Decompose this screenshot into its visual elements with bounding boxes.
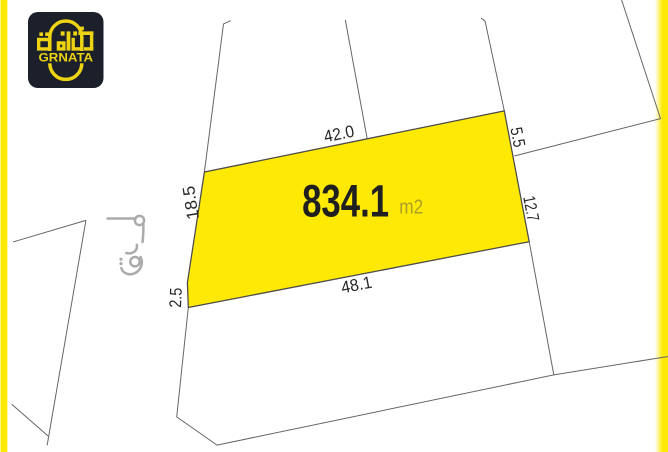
svg-text:5.5: 5.5 — [506, 126, 528, 149]
svg-text:m2: m2 — [399, 196, 423, 218]
svg-text:GRNATA: GRNATA — [39, 52, 94, 64]
svg-text:18.5: 18.5 — [179, 185, 203, 221]
svg-text:2.5: 2.5 — [166, 287, 186, 308]
svg-text:834.1: 834.1 — [302, 176, 389, 227]
